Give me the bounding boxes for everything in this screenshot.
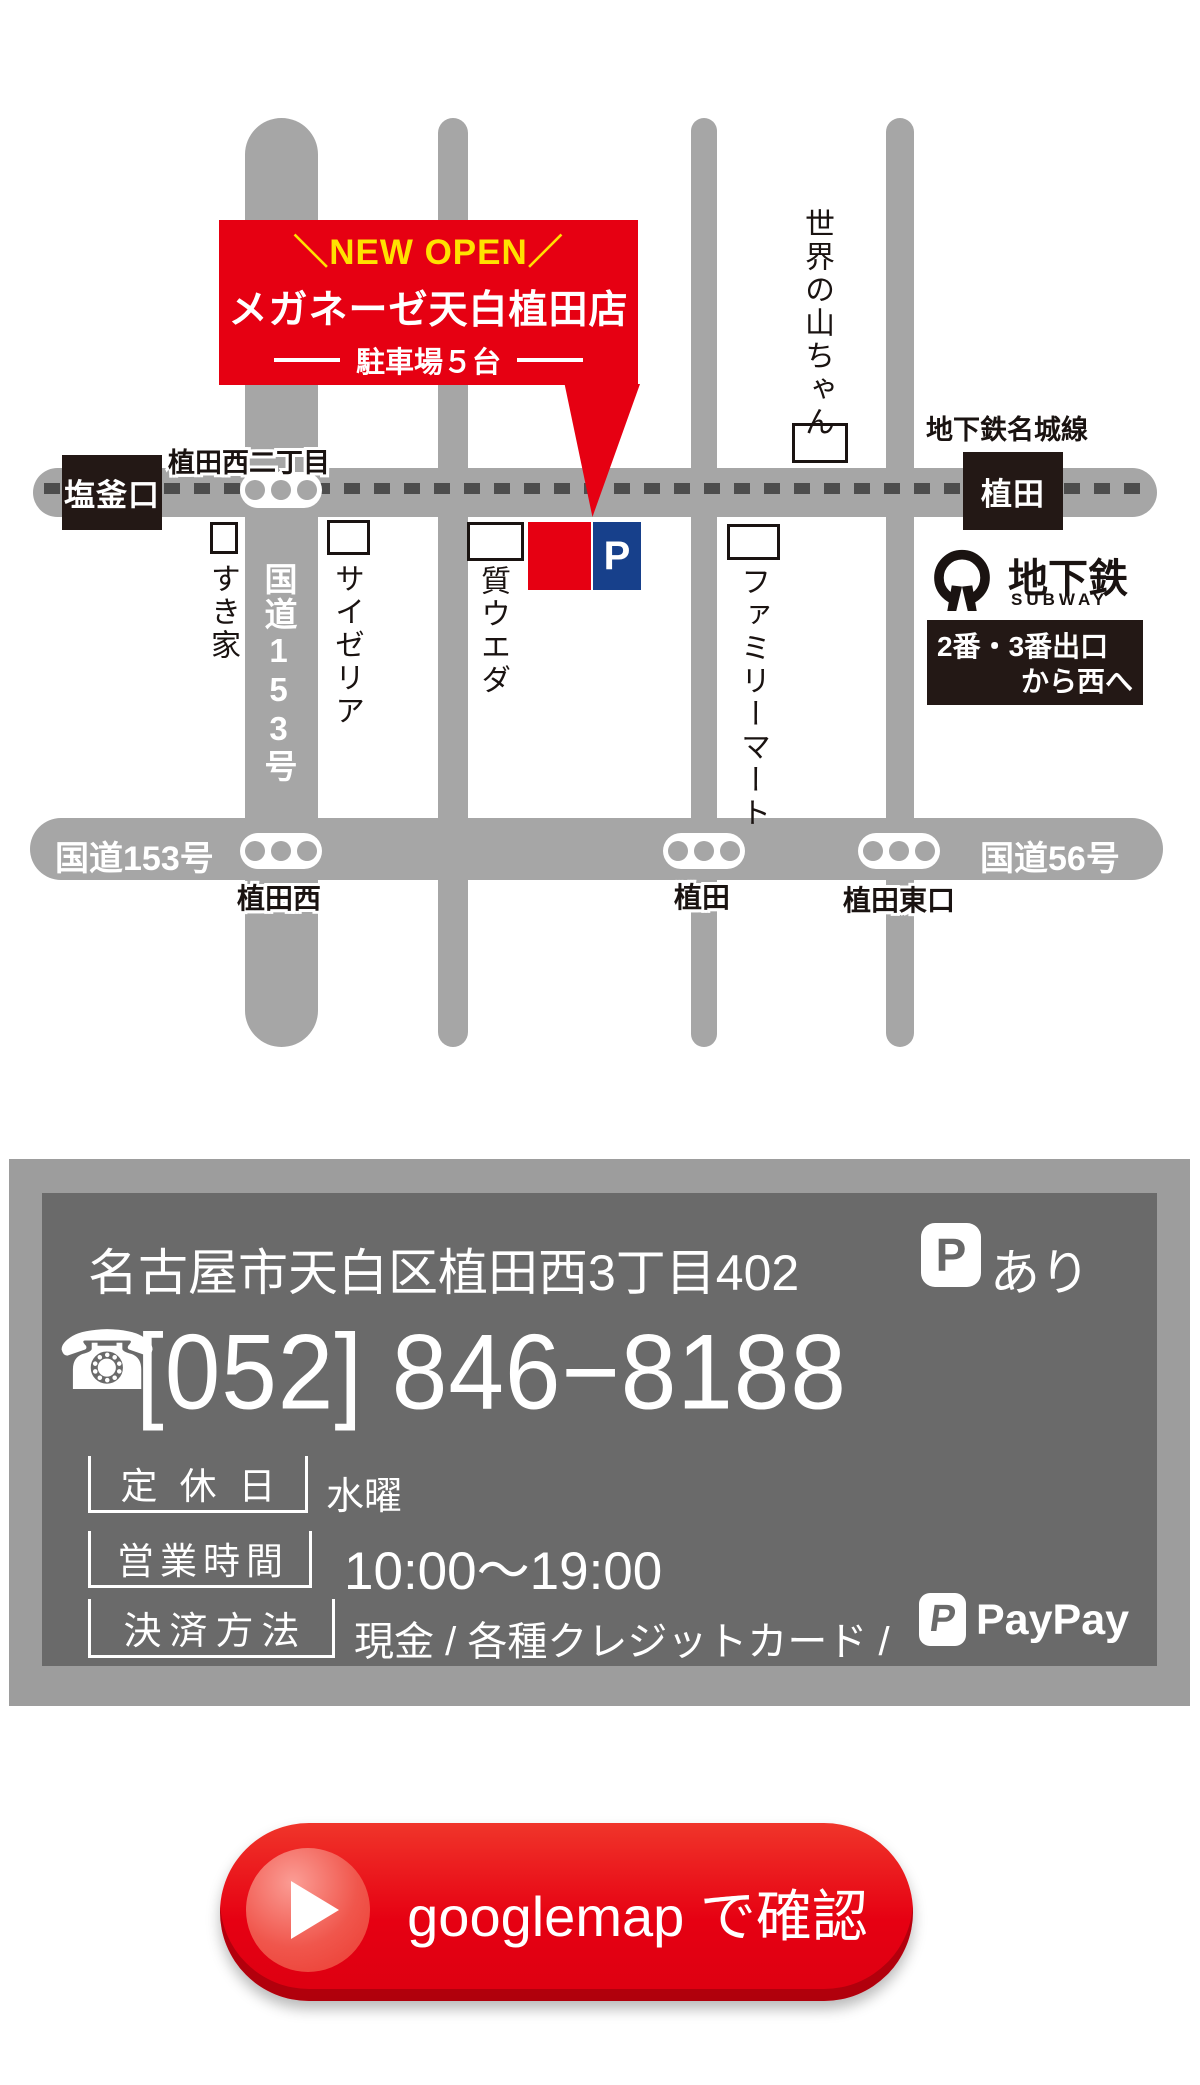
paypay-icon-letter: P [927,1598,958,1641]
store-info-panel: 名古屋市天白区植田西3丁目402 P あり ☎ [052] 846−8188 定… [9,1159,1190,1706]
payment-method-label: 決済方法 [88,1599,335,1658]
business-hours-value: 10:00〜19:00 [344,1529,662,1605]
play-icon [246,1848,370,1972]
store-address: 名古屋市天白区植田西3丁目402 [88,1233,799,1305]
parking-note: あり [990,1233,1090,1305]
landmark-box-sukiya [210,522,238,554]
stop-label-ueda-higashiguchi: 植田東口 [843,879,955,919]
play-triangle-icon [291,1881,339,1939]
signal-uedanishi [240,833,322,869]
banner-rule-right [517,358,583,362]
road-label-route153-bottom: 国道153号 [55,831,214,880]
signal-ueda-higashiguchi [858,833,940,869]
landmark-label-yamachan: 世界の山ちゃん [801,208,831,439]
new-open-banner: ＼NEW OPEN／ メガネーゼ天白植田店 駐車場５台 [219,220,638,385]
store-location-marker [528,522,591,590]
paypay-logo-text: PayPay [976,1596,1129,1645]
landmark-box-familymart [727,524,780,560]
store-parking-marker: P [593,522,641,590]
landmark-box-shichi-ueda [467,522,524,561]
exit-info-line1: 2番・3番出口 [937,629,1133,664]
subway-en-label: SUBWAY [1011,590,1108,610]
stop-label-ueda: 植田 [674,876,730,916]
subway-meijo-line-label: 地下鉄名城線 [926,408,1088,447]
exit-info-line2: から西へ [937,664,1133,699]
station-shiogamaguchi: 塩釜口 [62,455,162,530]
business-hours-label: 営業時間 [88,1531,312,1588]
store-info-inner-panel: 名古屋市天白区植田西3丁目402 P あり ☎ [052] 846−8188 定… [42,1193,1157,1666]
landmark-label-sukiya: すき家 [207,563,237,662]
subway-exit-info-box: 2番・3番出口 から西へ [927,620,1143,705]
banner-new-open-text: ＼NEW OPEN／ [293,224,564,275]
banner-parking-text: 駐車場５台 [356,339,501,381]
banner-parking-line: 駐車場５台 [274,339,583,381]
landmark-label-familymart: ファミリーマート [737,566,767,830]
parking-icon-letter: P [936,1228,967,1282]
googlemap-button-label: googlemap で確認 [388,1823,887,2001]
station-ueda: 植田 [963,452,1063,530]
closed-day-value: 水曜 [326,1465,402,1520]
parking-icon: P [921,1223,981,1287]
store-access-flyer: 植田西二丁目 植田西 植田 植田東口 塩釜口 植田 ＼NEW OPEN／ メガネ… [0,0,1200,2085]
landmark-label-saizeriya: サイゼリア [331,563,361,728]
subway-logo-icon [930,545,994,613]
landmark-box-saizeriya [327,520,370,555]
landmark-label-shichi-ueda: 質ウエダ [477,565,507,697]
road-label-route56: 国道56号 [980,831,1120,880]
banner-rule-left [274,358,340,362]
signal-ueda [663,833,745,869]
banner-store-name: メガネーゼ天白植田店 [228,279,628,335]
phone-number: [052] 846−8188 [136,1313,847,1431]
paypay-icon: P [919,1593,966,1646]
stop-label-uedanishi: 植田西 [237,877,321,917]
googlemap-button[interactable]: googlemap で確認 [220,1823,913,2001]
closed-day-label: 定休日 [88,1456,308,1513]
road-label-route153-vertical: 国道153号 [262,562,295,784]
intersection-label-top: 植田西二丁目 [168,441,330,480]
payment-method-value: 現金 / 各種クレジットカード / [354,1609,890,1667]
access-map: 植田西二丁目 植田西 植田 植田東口 塩釜口 植田 ＼NEW OPEN／ メガネ… [0,0,1200,1110]
